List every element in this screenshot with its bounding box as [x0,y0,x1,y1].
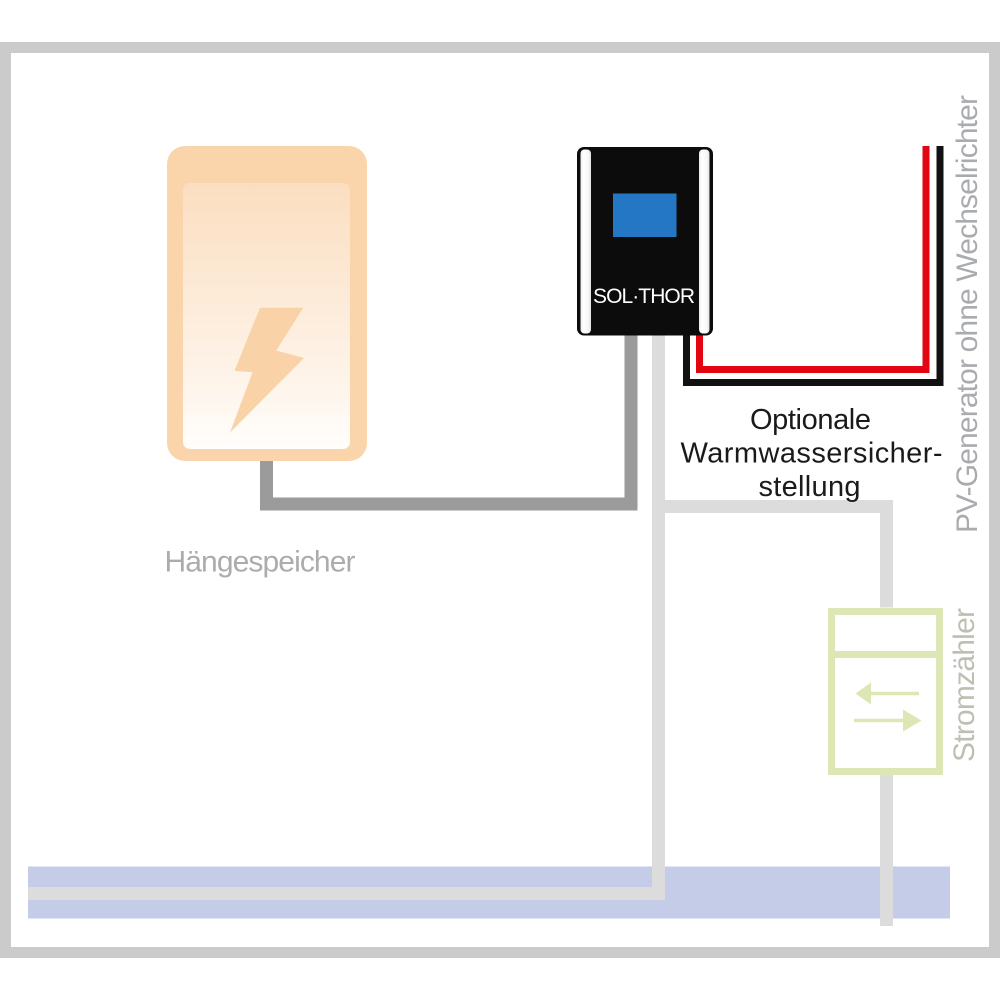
svg-text:stellung: stellung [759,471,861,503]
svg-text:Stromzähler: Stromzähler [948,608,981,762]
svg-text:Optionale: Optionale [750,404,871,436]
svg-text:SOL·THOR: SOL·THOR [593,285,695,308]
svg-text:Hängespeicher: Hängespeicher [165,546,356,579]
svg-text:Warmwassersicher-: Warmwassersicher- [681,438,943,470]
svg-text:PV-Generator ohne Wechselricht: PV-Generator ohne Wechselrichter [951,95,984,533]
